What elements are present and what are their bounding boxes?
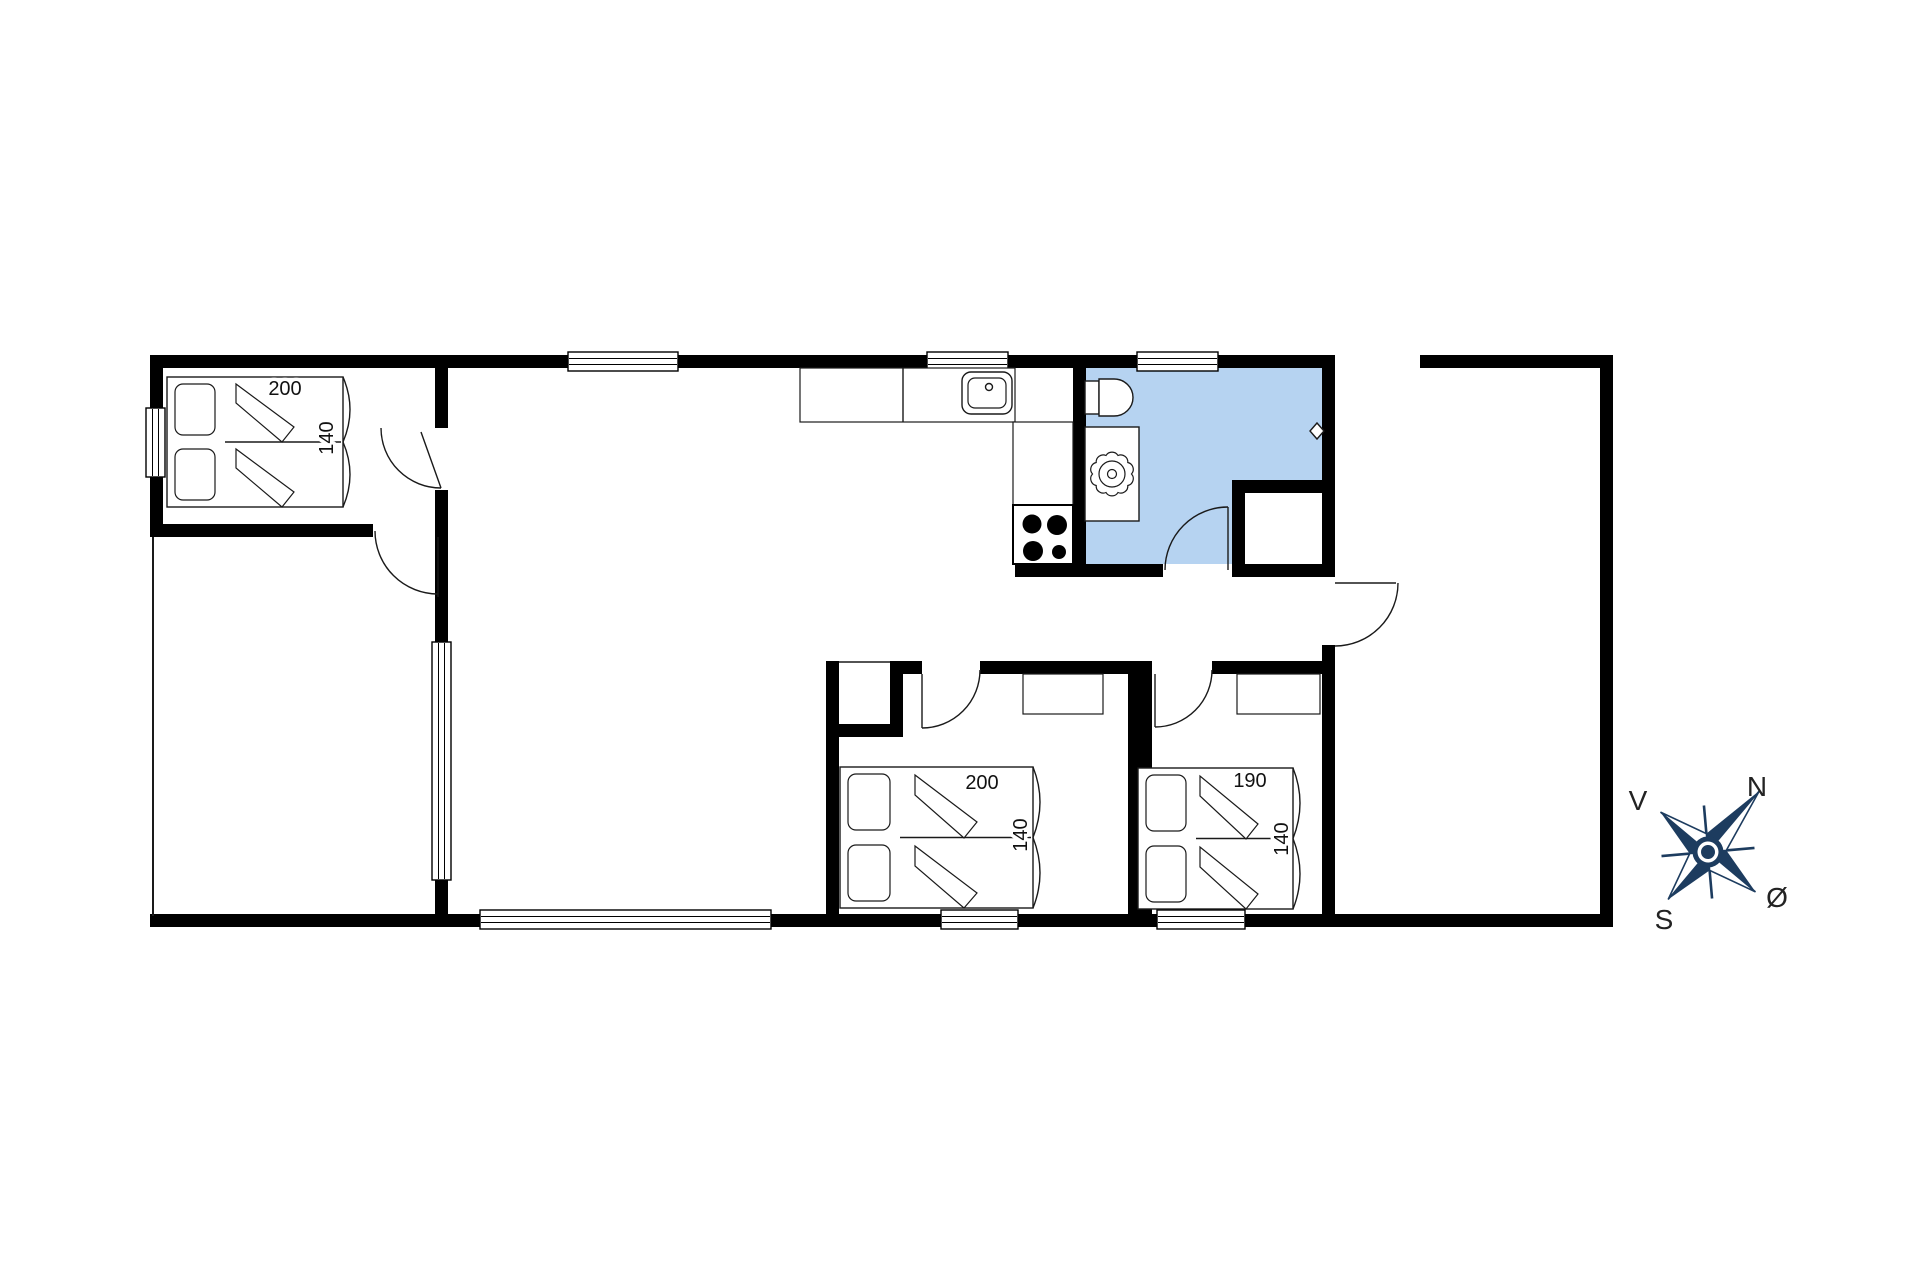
stove-icon — [1013, 505, 1073, 564]
bed-width-label: 140 — [316, 421, 338, 454]
window — [1157, 910, 1245, 929]
shower-drain-icon — [1085, 427, 1139, 521]
window — [480, 910, 771, 929]
window — [941, 910, 1018, 929]
floor-plan-canvas: 200 140 200 140 190 140 — [0, 0, 1920, 1279]
door-annex — [1335, 583, 1398, 646]
double-bed: 200 140 — [167, 377, 350, 507]
kitchen-sink-icon — [962, 372, 1012, 414]
compass-east-label: Ø — [1766, 882, 1788, 913]
window — [568, 352, 678, 371]
bed-length-label: 200 — [965, 772, 998, 794]
bed-length-label: 190 — [1233, 770, 1266, 792]
door-bedroom-middle — [922, 670, 980, 728]
compass-north-label: N — [1747, 771, 1767, 802]
bed-length-label: 200 — [268, 378, 301, 400]
wardrobe — [1237, 674, 1320, 714]
compass-west-label: V — [1629, 785, 1648, 816]
door-terrace-room — [375, 531, 438, 597]
double-bed: 200 140 — [840, 767, 1040, 908]
window — [432, 642, 451, 880]
bed-width-label: 140 — [1010, 818, 1032, 851]
door-bedroom-right — [1155, 670, 1212, 727]
compass-south-label: S — [1655, 904, 1674, 935]
window — [146, 408, 165, 477]
floor-plan: 200 140 200 140 190 140 — [0, 0, 1920, 1279]
door-top-left-bedroom — [381, 428, 441, 488]
bed-width-label: 140 — [1271, 822, 1293, 855]
toilet-icon — [1085, 379, 1133, 416]
window — [1137, 352, 1218, 371]
compass-rose: N Ø S V — [1621, 751, 1807, 939]
double-bed: 190 140 — [1138, 768, 1300, 909]
wardrobe — [1023, 674, 1103, 714]
